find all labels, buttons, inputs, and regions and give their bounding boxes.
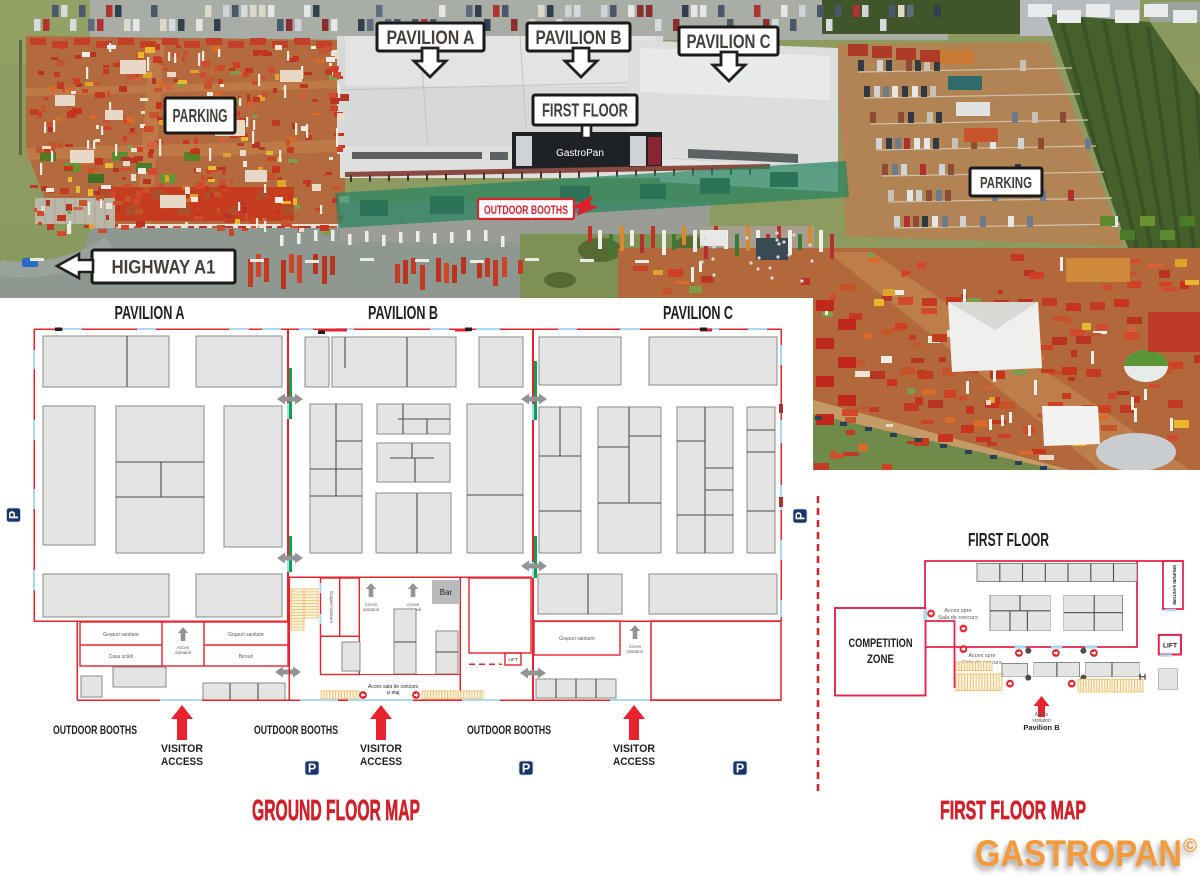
svg-text:OUTDOOR BOOTHS: OUTDOOR BOOTHS xyxy=(53,725,137,737)
svg-text:OUTDOOR BOOTHS: OUTDOOR BOOTHS xyxy=(467,725,551,737)
svg-text:FIRST FLOOR: FIRST FLOOR xyxy=(542,100,628,120)
svg-text:ZONE: ZONE xyxy=(867,652,894,666)
svg-text:P: P xyxy=(794,512,808,520)
svg-text:P: P xyxy=(308,762,316,776)
svg-text:Birouri: Birouri xyxy=(239,654,253,660)
svg-text:©: © xyxy=(1183,836,1197,857)
svg-text:HIGHWAY A1: HIGHWAY A1 xyxy=(112,257,216,278)
svg-text:PAVILION A: PAVILION A xyxy=(115,303,185,323)
svg-text:Grupuri sanitare: Grupuri sanitare xyxy=(103,632,139,638)
svg-text:PAVILION C: PAVILION C xyxy=(663,303,733,323)
svg-text:P: P xyxy=(522,762,530,776)
svg-text:Acces spre: Acces spre xyxy=(968,653,995,659)
svg-text:LIFT: LIFT xyxy=(1163,644,1177,650)
svg-text:VISITOR: VISITOR xyxy=(161,743,203,755)
svg-text:PAVILION B: PAVILION B xyxy=(536,28,622,49)
svg-text:Acces spre: Acces spre xyxy=(944,608,971,614)
svg-text:vizitatori: vizitatori xyxy=(363,607,380,612)
svg-text:și etaj: și etaj xyxy=(386,690,399,696)
svg-text:ACCESS: ACCESS xyxy=(613,756,655,768)
svg-text:PARKING: PARKING xyxy=(173,106,228,126)
svg-text:Grupuri sanitare: Grupuri sanitare xyxy=(559,636,595,642)
svg-text:PAVILION B: PAVILION B xyxy=(368,303,438,323)
svg-text:Pavilion B: Pavilion B xyxy=(1023,723,1060,732)
svg-text:GROUND FLOOR MAP: GROUND FLOOR MAP xyxy=(252,795,420,827)
svg-text:P: P xyxy=(736,762,744,776)
svg-text:vizitatori: vizitatori xyxy=(175,650,192,655)
svg-text:ACCESS: ACCESS xyxy=(161,756,203,768)
svg-text:VISITOR: VISITOR xyxy=(360,743,402,755)
svg-text:Sala de concurs: Sala de concurs xyxy=(938,615,978,621)
svg-text:vizitatori: vizitatori xyxy=(627,649,644,654)
svg-text:FIRST FLOOR: FIRST FLOOR xyxy=(968,530,1049,550)
svg-text:PAVILION C: PAVILION C xyxy=(687,32,771,53)
svg-text:PARKING: PARKING xyxy=(980,175,1032,192)
svg-text:GASTROPAN: GASTROPAN xyxy=(975,833,1182,874)
svg-text:FIRST FLOOR MAP: FIRST FLOOR MAP xyxy=(940,795,1086,825)
svg-text:ACCESS: ACCESS xyxy=(360,756,402,768)
svg-text:P: P xyxy=(7,511,21,519)
svg-text:OUTDOOR BOOTHS: OUTDOOR BOOTHS xyxy=(484,205,568,217)
svg-text:LIFT: LIFT xyxy=(508,657,518,662)
svg-text:GastroPan: GastroPan xyxy=(556,148,604,159)
svg-text:Bar: Bar xyxy=(440,588,453,597)
svg-text:Grupuri sanitare: Grupuri sanitare xyxy=(329,591,334,624)
svg-text:OUTDOOR BOOTHS: OUTDOOR BOOTHS xyxy=(254,725,338,737)
svg-text:VISITOR: VISITOR xyxy=(613,743,655,755)
svg-text:Grupuri sanitare: Grupuri sanitare xyxy=(228,632,264,638)
svg-text:PAVILION A: PAVILION A xyxy=(387,28,475,49)
svg-text:Casa scării: Casa scării xyxy=(109,654,134,660)
svg-text:COMPETITION: COMPETITION xyxy=(849,636,913,650)
svg-text:GRUPURI SANITARE: GRUPURI SANITARE xyxy=(1172,565,1177,605)
